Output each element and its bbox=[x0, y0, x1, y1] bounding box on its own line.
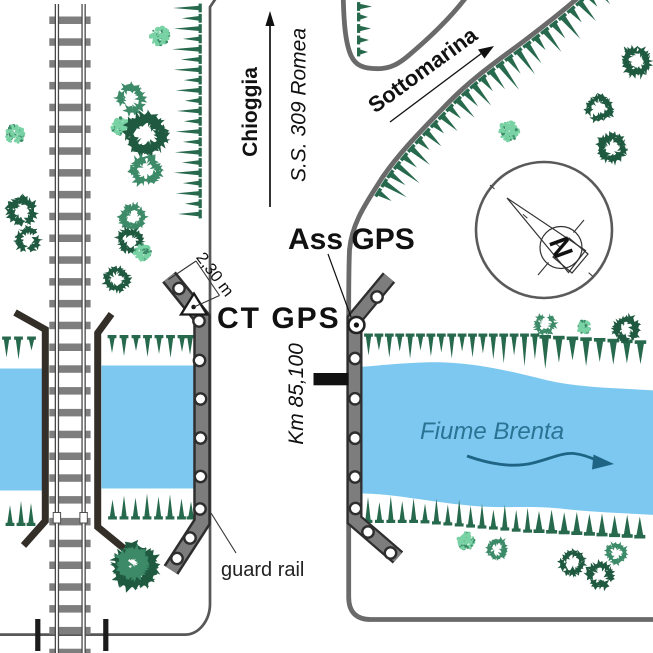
svg-text:Km 85,100: Km 85,100 bbox=[285, 343, 308, 445]
svg-text:CT GPS: CT GPS bbox=[217, 302, 341, 335]
svg-text:Ass GPS: Ass GPS bbox=[288, 223, 415, 256]
svg-text:Chioggia: Chioggia bbox=[239, 67, 262, 157]
svg-text:S.S. 309 Romea: S.S. 309 Romea bbox=[288, 28, 311, 182]
svg-text:Fiume Brenta: Fiume Brenta bbox=[420, 418, 564, 445]
svg-text:guard rail: guard rail bbox=[221, 559, 304, 581]
